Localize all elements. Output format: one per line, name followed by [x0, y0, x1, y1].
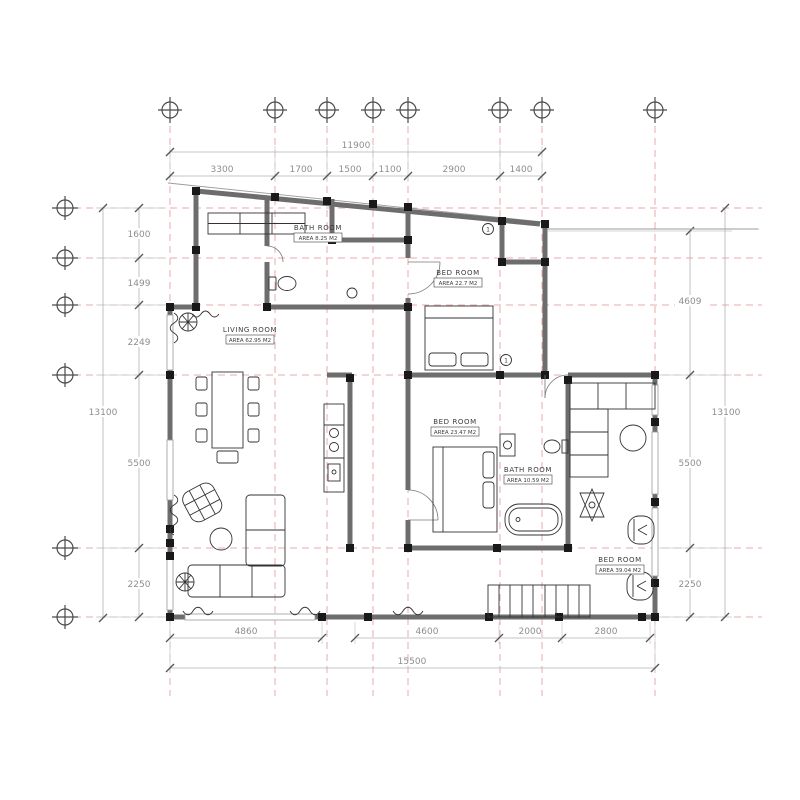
l-sofa [188, 495, 285, 597]
kitchen-sink [328, 464, 340, 481]
dim-right-seg-3: 2250 [679, 580, 702, 590]
dim-left-seg-3: 2249 [128, 338, 151, 348]
dim-top-seg-2: 1700 [290, 165, 313, 175]
round-table [620, 425, 646, 451]
room-area: AREA 62.95 M2 [229, 338, 271, 344]
dim-left-seg-1: 1600 [128, 230, 151, 240]
room-name: BATH ROOM [294, 224, 342, 232]
dimension-chain-left: 13100 1600 1499 2249 5500 2250 [85, 204, 166, 622]
dim-top-seg-4: 1100 [379, 165, 402, 175]
bed-middle-bedroom [433, 447, 497, 532]
dim-bottom-seg-1: 4860 [235, 627, 258, 637]
note-marker-2: 1 [504, 358, 508, 365]
dim-left-seg-5: 2250 [128, 580, 151, 590]
dim-top-seg-3: 1500 [339, 165, 362, 175]
room-name: BED ROOM [433, 418, 477, 426]
room-area: AREA 22.7 M2 [439, 281, 478, 287]
dim-right-seg-1: 4609 [679, 297, 702, 307]
dim-right-total: 13100 [712, 408, 741, 418]
dim-bottom-seg-3: 2000 [519, 627, 542, 637]
toilet-top-bathroom [269, 277, 296, 291]
bathtub [505, 504, 562, 535]
dim-left-seg-4: 5500 [128, 459, 151, 469]
windows [167, 315, 658, 620]
structural-columns [166, 187, 659, 621]
furniture [170, 213, 655, 617]
dim-top-seg-6: 1400 [510, 165, 533, 175]
room-label-living: LIVING ROOM AREA 62.95 M2 [223, 326, 277, 344]
axis-bubble-column [158, 97, 667, 123]
bedroom2-door-arc [408, 490, 438, 520]
room-name: BED ROOM [436, 269, 480, 277]
stove-burner-icon [330, 443, 339, 452]
dimension-chain-top: 11900 3300 1700 1500 1100 2900 1400 [166, 141, 546, 182]
dim-bottom-seg-2: 4600 [416, 627, 439, 637]
dim-left-seg-2: 1499 [128, 279, 151, 289]
stairs [488, 585, 590, 617]
bed-top-bedroom [425, 306, 493, 370]
toilet-bowl [544, 440, 560, 453]
closet-top-left [208, 213, 305, 234]
curtain-squiggles [170, 311, 423, 615]
dim-bottom-seg-4: 2800 [595, 627, 618, 637]
dim-top-seg-5: 2900 [443, 165, 466, 175]
room-label-bath-middle: BATH ROOM AREA 10.59 M2 [504, 466, 552, 484]
armchair [179, 480, 225, 525]
bathroom-sink [347, 288, 357, 298]
room-area: AREA 10.59 M2 [507, 478, 549, 484]
dim-right-seg-2: 5500 [679, 459, 702, 469]
tub-chair [628, 516, 654, 544]
ceiling-fan-icon [176, 313, 197, 591]
room-area: AREA 23.47 M2 [434, 430, 476, 436]
room-area: AREA 8.25 M2 [299, 236, 338, 242]
dimension-chain-right: 4609 5500 2250 13100 [548, 204, 745, 621]
dim-bottom-total: 15500 [398, 657, 427, 667]
dim-top-seg-1: 3300 [211, 165, 234, 175]
room-name: BATH ROOM [504, 466, 552, 474]
room-label-bath-top: BATH ROOM AREA 8.25 M2 [294, 224, 342, 242]
bathroom-middle-fixtures [500, 434, 568, 535]
room-label-bed-top: BED ROOM AREA 22.7 M2 [434, 269, 482, 287]
dimension-chain-bottom: 4860 4600 2000 2800 15500 [166, 622, 659, 672]
note-markers: 1 1 [483, 224, 512, 366]
floor-plan: 11900 3300 1700 1500 1100 2900 1400 1310… [0, 0, 800, 800]
room-area: AREA 39.04 M2 [599, 568, 641, 574]
coffee-table [210, 528, 232, 550]
room-name: LIVING ROOM [223, 326, 277, 334]
axis-bubble-row [52, 196, 78, 629]
tub-chair [627, 572, 653, 600]
room-label-bed-middle: BED ROOM AREA 23.47 M2 [431, 418, 479, 436]
stove-burner-icon [330, 429, 339, 438]
plant-icon [580, 489, 604, 521]
wardrobe-right-bedroom [570, 383, 655, 477]
vanity [500, 434, 515, 456]
room-label-bed-right: BED ROOM AREA 39.04 M2 [596, 556, 644, 574]
dim-left-total: 13100 [89, 408, 118, 418]
roof-outline [168, 183, 758, 229]
dining-set [196, 372, 259, 463]
grid-axis-markers [52, 97, 667, 629]
room-name: BED ROOM [598, 556, 642, 564]
floor-plan-drawing: 11900 3300 1700 1500 1100 2900 1400 1310… [0, 0, 800, 800]
dim-top-total: 11900 [342, 141, 371, 151]
note-marker-1: 1 [486, 227, 490, 234]
